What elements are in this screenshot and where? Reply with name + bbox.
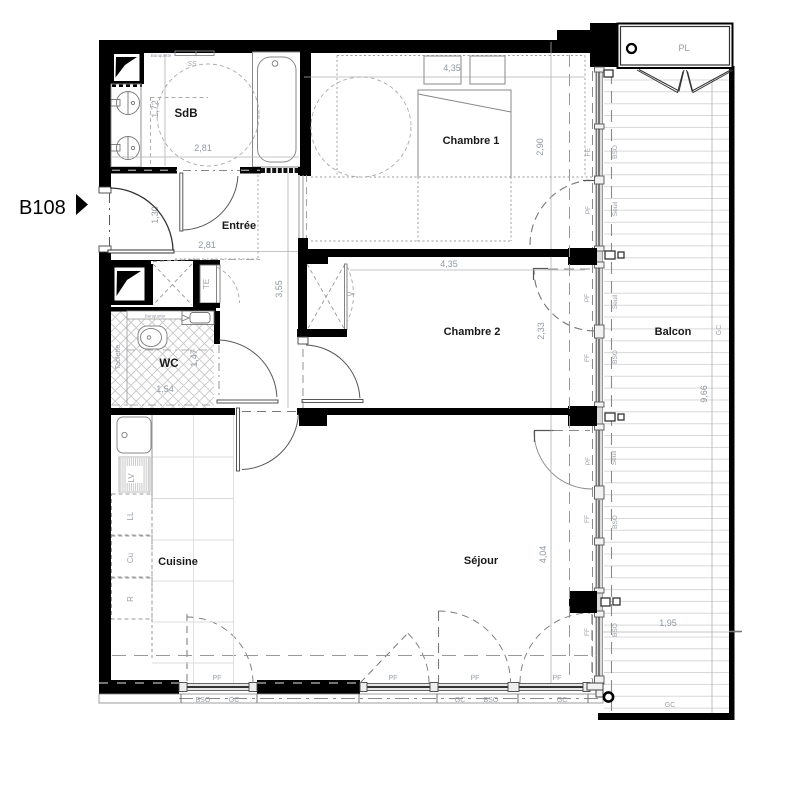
svg-text:Balcon: Balcon bbox=[655, 326, 692, 338]
svg-text:3,55: 3,55 bbox=[274, 280, 284, 298]
svg-text:BSO: BSO bbox=[196, 697, 211, 704]
svg-text:PF: PF bbox=[471, 675, 480, 682]
svg-text:WC: WC bbox=[159, 358, 178, 370]
svg-text:2,90: 2,90 bbox=[535, 138, 545, 156]
svg-text:1,72: 1,72 bbox=[150, 100, 160, 118]
svg-text:FE: FE bbox=[585, 147, 592, 156]
svg-text:PF: PF bbox=[585, 457, 592, 465]
svg-text:LV: LV bbox=[127, 473, 136, 483]
svg-text:9,66: 9,66 bbox=[699, 385, 709, 403]
svg-text:FF: FF bbox=[584, 515, 591, 523]
svg-text:2,81: 2,81 bbox=[198, 240, 216, 250]
svg-text:PF: PF bbox=[553, 675, 562, 682]
svg-text:2,81: 2,81 bbox=[194, 143, 212, 153]
svg-text:Seuil: Seuil bbox=[612, 294, 619, 309]
svg-text:GC: GC bbox=[229, 697, 240, 704]
svg-text:B108: B108 bbox=[19, 197, 66, 219]
svg-text:BSO: BSO bbox=[612, 623, 619, 637]
svg-text:R: R bbox=[126, 596, 135, 602]
svg-text:Entrée: Entrée bbox=[222, 220, 256, 232]
svg-text:FF: FF bbox=[584, 628, 591, 636]
svg-text:Chambre 2: Chambre 2 bbox=[444, 326, 501, 338]
svg-text:BSO: BSO bbox=[612, 145, 619, 159]
svg-text:LL: LL bbox=[126, 511, 135, 520]
svg-text:1,47: 1,47 bbox=[189, 349, 199, 367]
svg-text:PF: PF bbox=[213, 675, 222, 682]
svg-text:SS: SS bbox=[187, 61, 197, 68]
svg-text:PL: PL bbox=[678, 43, 689, 53]
svg-text:1,54: 1,54 bbox=[156, 384, 174, 394]
svg-text:SdB: SdB bbox=[175, 108, 198, 120]
svg-text:PF: PF bbox=[389, 675, 398, 682]
svg-text:Cuisine: Cuisine bbox=[158, 556, 198, 568]
svg-text:1,95: 1,95 bbox=[659, 618, 677, 628]
svg-text:Chambre 1: Chambre 1 bbox=[443, 135, 500, 147]
svg-text:Tablette: Tablette bbox=[115, 345, 122, 370]
svg-text:BSO: BSO bbox=[612, 350, 619, 364]
svg-text:BSO: BSO bbox=[484, 697, 499, 704]
svg-text:TE: TE bbox=[202, 279, 211, 289]
svg-text:Banquette: Banquette bbox=[151, 53, 172, 58]
svg-text:4,04: 4,04 bbox=[538, 546, 548, 564]
svg-text:4,35: 4,35 bbox=[443, 63, 461, 73]
svg-text:GC: GC bbox=[557, 697, 568, 704]
svg-text:FF: FF bbox=[584, 354, 591, 362]
svg-text:1,30: 1,30 bbox=[150, 206, 160, 224]
svg-text:GC: GC bbox=[455, 697, 466, 704]
svg-text:GC: GC bbox=[716, 325, 723, 336]
svg-text:Séjour: Séjour bbox=[464, 555, 499, 567]
svg-text:Banquette: Banquette bbox=[145, 314, 166, 319]
svg-text:GC: GC bbox=[665, 702, 676, 709]
svg-text:BSO: BSO bbox=[612, 515, 619, 529]
svg-text:Seuil: Seuil bbox=[612, 201, 619, 216]
svg-text:PF: PF bbox=[585, 206, 592, 214]
svg-text:Seuil: Seuil bbox=[611, 450, 618, 465]
svg-text:PF: PF bbox=[584, 294, 591, 302]
svg-text:2,33: 2,33 bbox=[536, 322, 546, 340]
svg-text:Cu: Cu bbox=[126, 553, 135, 563]
svg-text:4,35: 4,35 bbox=[440, 259, 458, 269]
